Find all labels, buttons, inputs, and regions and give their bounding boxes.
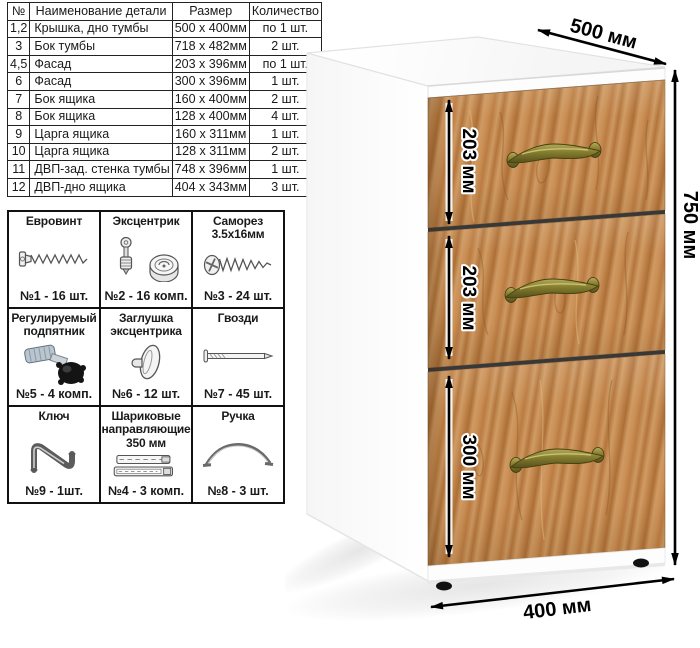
cell-num: 3 [8,38,30,56]
cam-lock-icon [109,236,183,282]
hardware-title: Ключ [39,410,70,423]
hardware-title: Гвозди [218,312,259,325]
cell-name: Царга ящика [30,126,172,144]
cell-num: 4,5 [8,55,30,73]
col-header-name: Наименование детали [30,3,172,21]
cell-size: 128 x 400мм [172,108,249,126]
dim-label-drawer2: 203 мм [458,265,479,330]
cell-size: 500 x 400мм [172,20,249,38]
assembly-instruction-sheet: № Наименование детали Размер Количество … [0,0,700,648]
hardware-count: №2 - 16 комп. [104,289,187,303]
table-row: 3Бок тумбы718 x 482мм2 шт. [8,38,322,56]
hardware-title: Евровинт [26,215,82,228]
cell-num: 11 [8,161,30,179]
hardware-item-slides: Шариковые направляющие 350 мм №4 - 3 ком… [100,406,192,503]
cell-num: 9 [8,126,30,144]
hardware-item-cap: Заглушка эксцентрика №6 - 12 шт. [100,308,192,406]
cell-size: 128 x 311мм [172,143,249,161]
ball-slides-icon [109,452,183,482]
cabinet-foot-left [436,582,452,591]
hardware-item-eurovint: Евровинт №1 - 16 шт. [8,211,100,308]
dim-label-drawer3: 300 мм [458,434,479,499]
cell-name: Бок тумбы [30,38,172,56]
hardware-title: Регулируемый подпятник [10,312,98,339]
hardware-count: №8 - 3 шт. [207,484,268,498]
hardware-count: №6 - 12 шт. [112,387,180,401]
table-row: 1,2Крышка, дно тумбы500 x 400ммпо 1 шт. [8,20,322,38]
dim-label-drawer1: 203 мм [458,128,479,193]
cell-name: Фасад [30,55,172,73]
cell-name: Крышка, дно тумбы [30,20,172,38]
hardware-item-samorez: Саморез 3.5х16мм №3 - 24 шт. [192,211,284,308]
hardware-item-excentric: Эксцентрик №2 - 16 комп. [100,211,192,308]
hardware-count: №3 - 24 шт. [204,289,272,303]
cam-cap-icon [124,340,168,386]
cell-name: Бок ящика [30,90,172,108]
hex-key-icon [25,432,83,476]
hardware-title: Шариковые направляющие 350 мм [101,410,190,450]
cabinet-side-panel [307,53,428,581]
hardware-item-key: Ключ №9 - 1шт. [8,406,100,503]
cell-name: ДВП-зад. стенка тумбы [30,161,172,179]
cell-size: 300 x 396мм [172,73,249,91]
cell-size: 748 x 396мм [172,161,249,179]
hardware-title: Эксцентрик [113,215,180,228]
parts-table-header-row: № Наименование детали Размер Количество [8,3,322,21]
hardware-item-nails: Гвозди №7 - 45 шт. [192,308,284,406]
cell-name: Фасад [30,73,172,91]
cell-num: 6 [8,73,30,91]
hardware-grid: Евровинт №1 - 16 шт. Эксцентрик [7,210,285,504]
hardware-count: №1 - 16 шт. [20,289,88,303]
table-row: 12ДВП-дно ящика404 x 343мм3 шт. [8,178,322,196]
table-row: 9Царга ящика160 x 311мм1 шт. [8,126,322,144]
cell-size: 404 x 343мм [172,178,249,196]
hardware-title: Заглушка эксцентрика [102,312,190,339]
nail-icon [201,346,275,366]
table-row: 11ДВП-зад. стенка тумбы748 x 396мм1 шт. [8,161,322,179]
table-row: 10Царга ящика128 x 311мм2 шт. [8,143,322,161]
table-row: 6Фасад300 x 396мм1 шт. [8,73,322,91]
hardware-item-handle: Ручка №8 - 3 шт. [192,406,284,503]
cell-size: 160 x 311мм [172,126,249,144]
cell-name: Бок ящика [30,108,172,126]
table-row: 4,5Фасад203 x 396ммпо 1 шт. [8,55,322,73]
drawer-left-edge-shade [428,97,447,567]
cell-num: 1,2 [8,20,30,38]
adjustable-foot-icon [19,340,89,386]
cell-num: 12 [8,178,30,196]
hardware-title: Ручка [221,410,254,423]
cell-size: 160 x 400мм [172,90,249,108]
cell-num: 10 [8,143,30,161]
hardware-count: №5 - 4 комп. [16,387,92,401]
hardware-count: №7 - 45 шт. [204,387,272,401]
hardware-count: №9 - 1шт. [25,484,83,498]
cell-size: 718 x 482мм [172,38,249,56]
parts-table: № Наименование детали Размер Количество … [7,2,322,197]
hardware-count: №4 - 3 комп. [108,484,184,498]
dim-label-height: 750 мм [679,191,700,260]
cell-size: 203 x 396мм [172,55,249,73]
cell-name: ДВП-дно ящика [30,178,172,196]
table-row: 8Бок ящика128 x 400мм4 шт. [8,108,322,126]
col-header-size: Размер [172,3,249,21]
cell-name: Царга ящика [30,143,172,161]
table-row: 7Бок ящика160 x 400мм2 шт. [8,90,322,108]
cell-num: 7 [8,90,30,108]
self-tapping-screw-icon [201,249,275,281]
cabinet-illustration: 203 мм 203 мм 300 мм 500 мм 750 мм 400 м… [285,10,700,648]
hardware-title: Саморез 3.5х16мм [194,215,282,242]
cabinet-foot-right [633,559,649,568]
cell-num: 8 [8,108,30,126]
handle-icon [201,438,275,470]
col-header-num: № [8,3,30,21]
hardware-item-foot: Регулируемый подпятник №5 - 4 комп. [8,308,100,406]
euro-screw-icon [17,245,91,273]
